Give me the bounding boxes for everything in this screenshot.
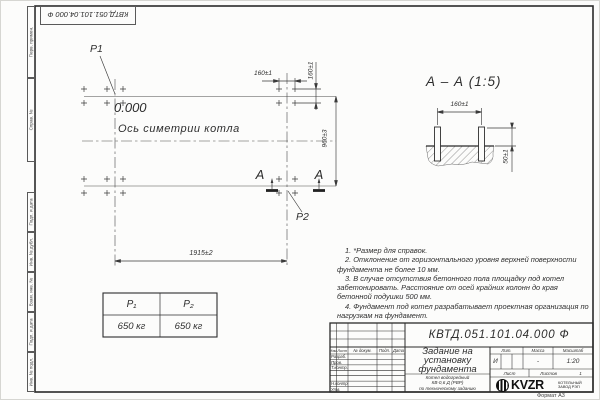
tb-mass-label: Масса [523,347,553,354]
title-block-doc-number: КВТД.051.101.04.000 Ф [405,323,593,347]
load-table-header-p1: Р₁ [103,293,160,315]
tb-sheet-label: Лист [490,369,529,377]
load-table-value-p1: 650 кг [103,315,160,337]
tb-row-tkontr: Т.контр. [330,365,348,370]
margin-label: Подп. и дата [29,198,34,225]
kvzr-logo-icon [496,379,509,392]
note-line: 3. В случае отсутствия бетонного пола пл… [337,274,593,302]
drawing-sheet: Перв. примен. Справ. № Подп. и дата Инв.… [0,0,600,400]
tb-product: Котел водогрейный КВ-0,6 Д (РВР) по техн… [405,375,490,392]
margin-box-podp-data-2: Подп. и дата [27,312,35,352]
technical-notes: 1. *Размер для справок. 2. Отклонение от… [337,246,593,320]
margin-box-inv-podl: Инв. № подл. [27,352,35,392]
margin-label: Перв. примен. [29,27,34,58]
tb-mass-value: - [523,354,553,369]
section-letter-right: А [313,167,325,182]
plan-elevation-mark: 0.000 [114,100,147,115]
margin-label: Справ. № [29,110,34,131]
plan-dim-bolt-x: 160±1 [248,70,278,77]
plan-dim-width: 1915±2 [171,250,231,257]
tb-col-list: Лист [337,347,349,354]
note-line: 1. *Размер для справок. [337,246,593,255]
tb-sheets-cell: Листов 1 [529,369,593,377]
note-line: 2. Отклонение от горизонтального уровня … [337,255,593,274]
tb-row-utv: Утв. [330,387,348,392]
section-letter-left: А [254,167,266,182]
section-dim-protrusion: 50±1 [503,140,510,174]
company-line: ЗАВОД РЭП [558,385,582,390]
margin-box-inv-dubl: Инв. № дубл. [27,232,35,272]
margin-box-perv-primen: Перв. примен. [27,6,35,78]
plan-point-p2-label: P2 [296,211,309,223]
plan-dim-height: 960±3 [322,117,329,161]
tb-product-line: по техническому заданию [405,386,490,392]
company-name: КОТЕЛЬНЫЙ ЗАВОД РЭП [558,381,582,391]
tb-col-data: Дата [392,347,405,354]
plan-dim-bolt-y: 160±1 [308,54,315,88]
margin-label: Инв. № подл. [29,358,34,387]
plan-point-p1-label: P1 [90,43,103,55]
format-label: Формат А3 [537,393,565,399]
tb-sheets-value: 1 [579,371,582,376]
tb-lit-label: Лит. [490,347,523,354]
tb-scale-label: Масштаб [553,347,593,354]
tb-sheets-label: Листов [540,371,557,376]
tb-title-line: фундамента [405,366,490,375]
tb-scale-value: 1:20 [553,354,593,369]
note-line: 4. Фундамент под котел разрабатывает про… [337,302,593,321]
tb-col-docum: № докум. [348,347,377,354]
margin-box-vzam-inv: Взам. инв. № [27,272,35,312]
margin-label: Подп. и дата [29,318,34,345]
load-table-value-p2: 650 кг [160,315,217,337]
section-title: А – А (1:5) [426,74,502,89]
margin-label: Взам. инв. № [29,278,34,306]
kvzr-logo-text: KVZR [511,378,544,392]
top-stamp-doc-number: КВТД.051.101.04.000 Ф [40,6,136,25]
plan-axis-label: Ось симетрии котла [118,123,240,135]
tb-col-podp: Подп. [377,347,392,354]
tb-title: Задание на установку фундамента [405,348,490,374]
section-dim-spacing: 160±1 [445,101,474,108]
margin-label: Инв. № дубл. [29,238,34,266]
tb-lit-value: И [490,354,501,369]
margin-box-sprav-no: Справ. № [27,78,35,162]
load-table-header-p2: Р₂ [160,293,217,315]
margin-box-podp-data-1: Подп. и дата [27,192,35,232]
